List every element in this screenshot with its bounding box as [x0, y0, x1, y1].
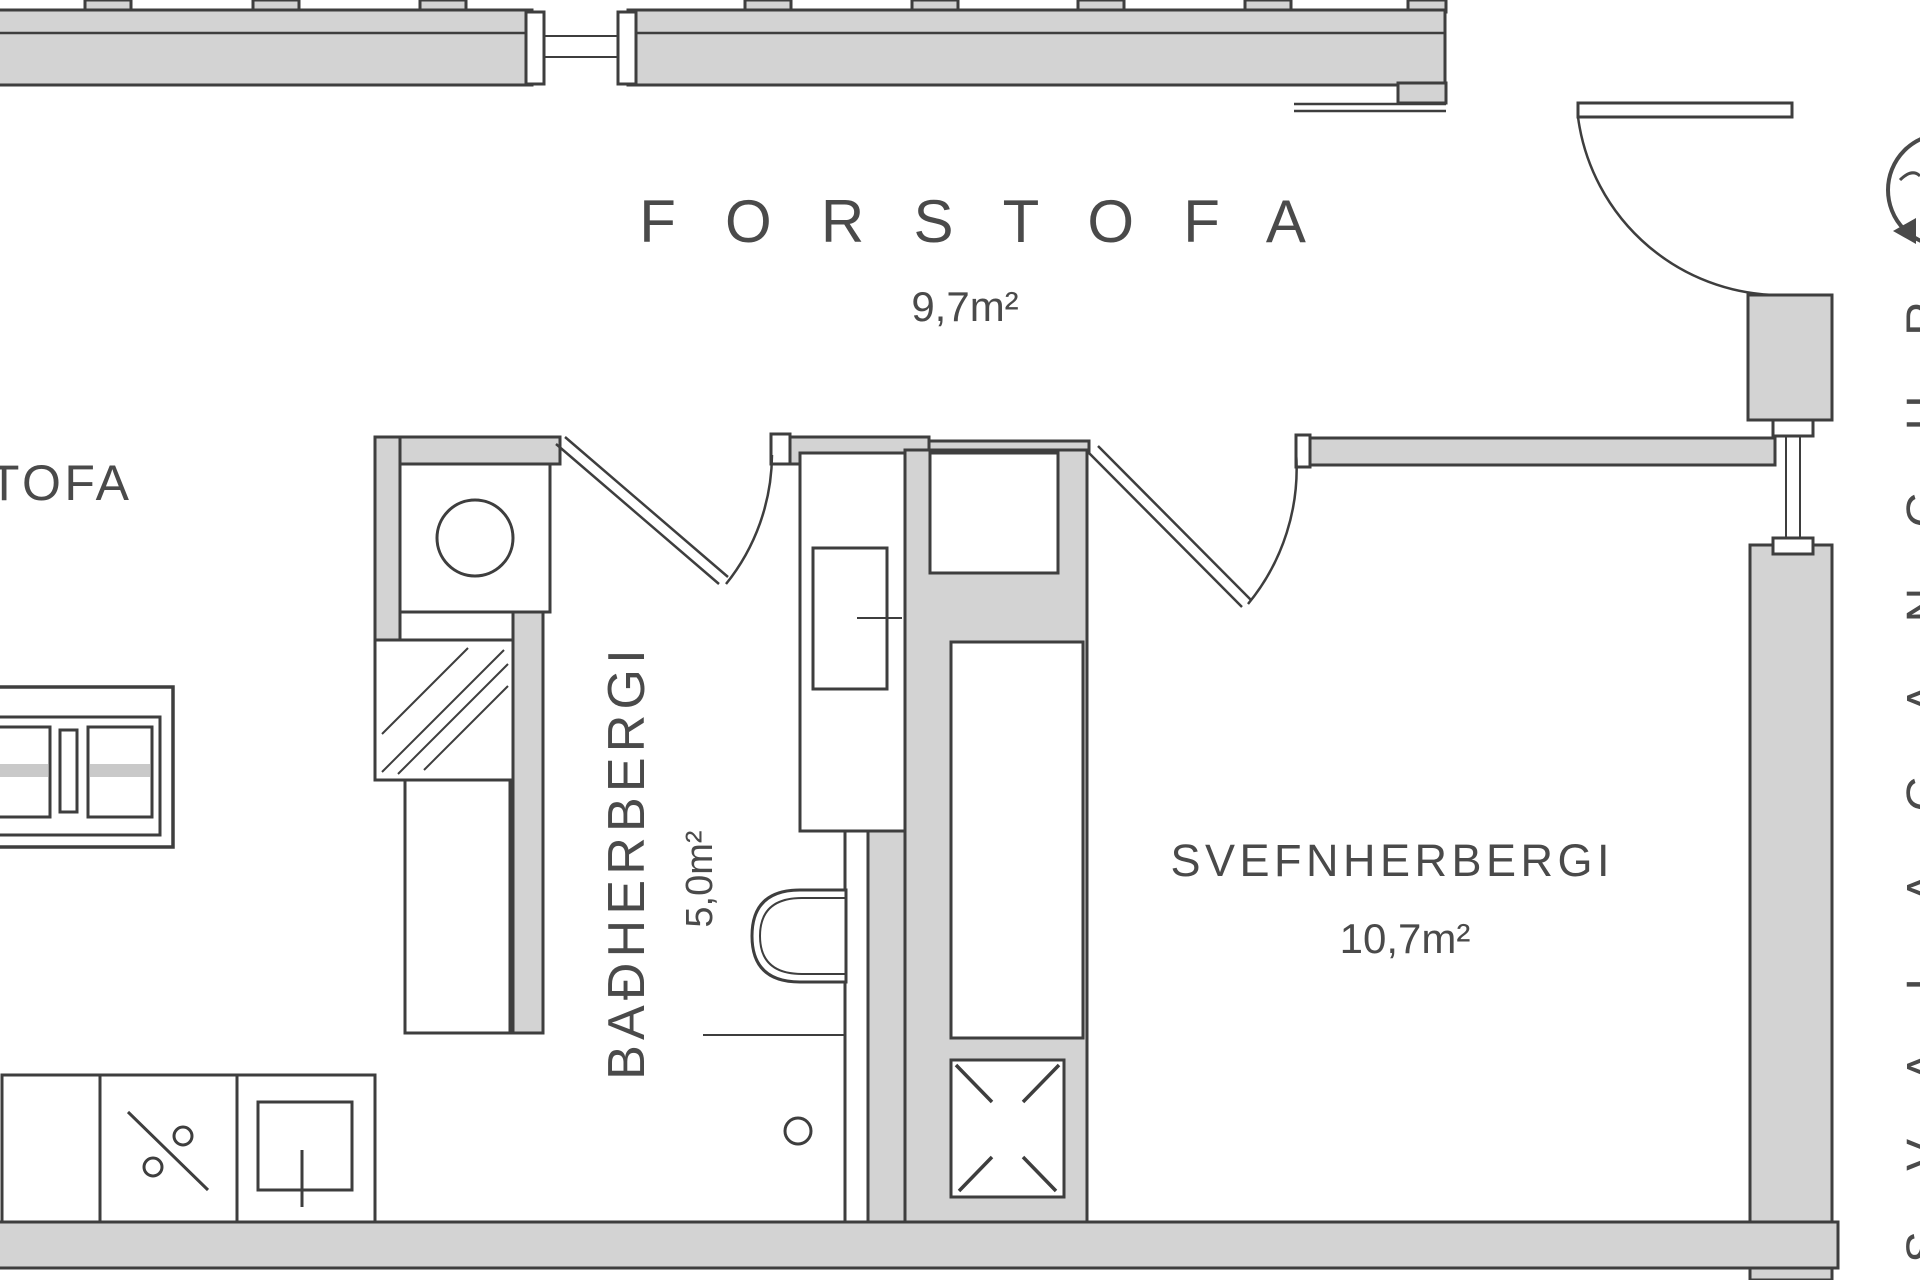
sofa-cushion-band — [90, 764, 150, 777]
top-wall-right — [628, 10, 1445, 85]
window-right-jamb — [1773, 420, 1813, 436]
kitchen-sink — [258, 1102, 352, 1190]
room-label-forstofa: FORSTOFA — [590, 192, 1340, 252]
room-area-forstofa: 9,7m² — [590, 286, 1340, 328]
bathroom-wall-strip — [845, 831, 868, 1222]
bathroom-wall-left-lower — [513, 612, 543, 1033]
toilet — [752, 890, 846, 982]
window-top-jamb — [618, 12, 636, 84]
window-top-jamb — [526, 12, 544, 84]
bathroom-door-leaf — [556, 444, 719, 584]
window-right-jamb — [1773, 538, 1813, 554]
right-wall — [1750, 545, 1832, 1280]
shaft-closet — [951, 642, 1083, 1038]
entrance-pier — [1748, 295, 1832, 420]
cooktop-symbol-dot — [144, 1158, 162, 1176]
bathroom-door-arc — [726, 455, 772, 584]
bedroom-door-jamb — [1296, 435, 1310, 467]
bottom-wall — [0, 1222, 1838, 1268]
bathroom-door-leaf — [565, 437, 728, 577]
bathroom-wall-right-lower — [868, 831, 905, 1222]
top-wall-left — [0, 10, 532, 85]
floor-drain — [785, 1118, 811, 1144]
bathroom-door-jamb — [771, 434, 790, 464]
cooktop-symbol-dot — [174, 1127, 192, 1145]
entrance-door-leaf — [1578, 103, 1792, 117]
bathroom-wall-top — [375, 437, 560, 464]
room-label-svefnherbergi: SVEFNHERBERGI — [1110, 838, 1670, 883]
room-label-badherbergi: BAÐHERBERGI — [601, 629, 653, 1095]
entrance-door-arc — [1578, 117, 1788, 295]
washing-machine — [400, 464, 550, 612]
floor-plan: FORSTOFA 9,7m² STOFA BAÐHERBERGI 5,0m² S… — [0, 0, 1920, 1280]
room-label-svalagangur: SVALAGANGUR — [1901, 127, 1920, 1280]
bathroom-wall-left-upper — [375, 437, 400, 642]
top-wall-step — [1398, 83, 1446, 103]
bedroom-door-leaf — [1089, 453, 1242, 607]
sofa-cushion-band — [0, 764, 48, 777]
room-area-badherbergi: 5,0m² — [681, 797, 719, 961]
shaft-niche — [930, 453, 1058, 573]
shaft-x-box — [951, 1060, 1064, 1197]
bedroom-door-arc — [1248, 452, 1297, 604]
sofa-divider — [60, 730, 77, 812]
mid-wall-right — [1310, 438, 1775, 465]
room-area-svefnherbergi: 10,7m² — [1080, 918, 1730, 960]
tall-cabinet — [405, 780, 510, 1033]
bedroom-door-leaf — [1098, 446, 1251, 600]
room-label-stofa: STOFA — [0, 458, 133, 508]
